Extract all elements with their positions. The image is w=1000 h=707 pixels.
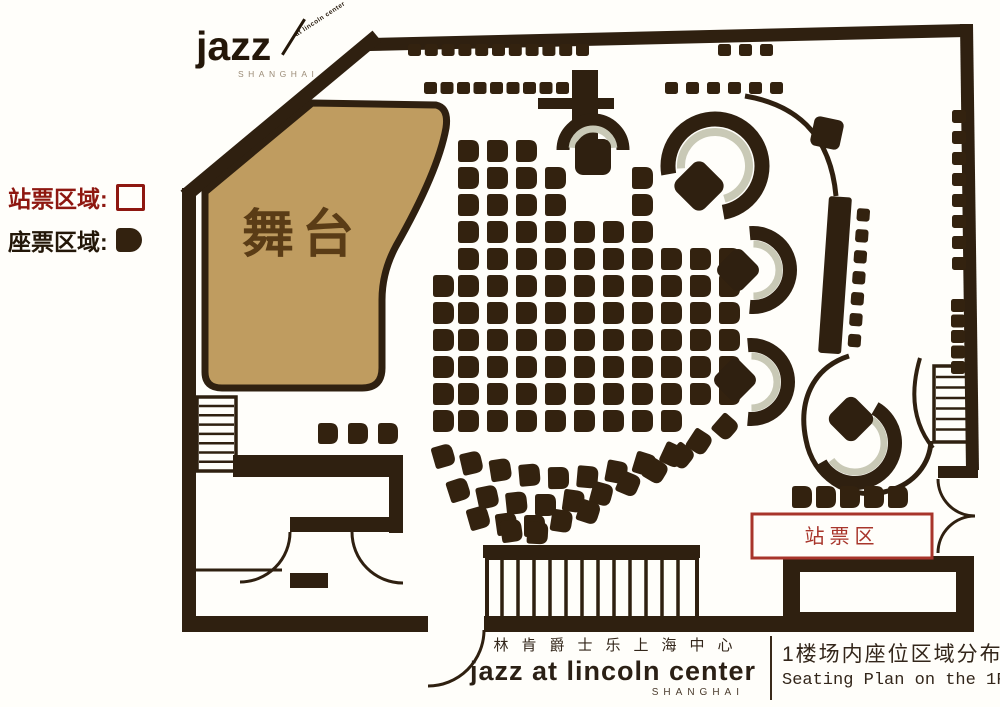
logo-word: jazz at lincoln center [196,26,318,67]
footer-plan-block: 1楼场内座位区域分布 Seating Plan on the 1F [782,634,1000,690]
legend-seated-label: 座票区域: [8,223,108,257]
jazz-logo: jazz at lincoln center SHANGHAI [196,26,318,79]
footer-venue-en: jazz at lincoln center [468,656,758,687]
stage-label: 舞台 [242,206,362,264]
legend-seated-row: 座票区域: [8,223,145,257]
logo-word-text: jazz [196,23,271,69]
entry-railing [487,558,697,622]
logo-city: SHANGHAI [238,69,318,79]
footer-venue-cn: 林肯爵士乐上海中心 [468,634,758,655]
bar-counter [809,115,871,355]
legend: 站票区域: 座票区域: [8,180,145,257]
standing-area-label: 站票区 [805,525,880,548]
footer-venue-city: SHANGHAI [468,687,758,698]
footer-plan-title-en: Seating Plan on the 1F [782,671,1000,690]
standing-area-box: 站票区 [752,514,932,558]
footer-venue-block: 林肯爵士乐上海中心 jazz at lincoln center SHANGHA… [468,634,758,698]
standing-swatch-icon [116,184,145,211]
legend-standing-row: 站票区域: [8,180,145,214]
footer-plan-title-cn: 1楼场内座位区域分布 [782,638,1000,668]
floorplan-canvas: 舞台 [0,0,1000,707]
footer: 林肯爵士乐上海中心 jazz at lincoln center SHANGHA… [468,634,1000,700]
stairs-left [197,397,236,471]
back-counter-inner [800,572,956,612]
legend-standing-label: 站票区域: [8,180,108,214]
seat-swatch-icon [116,228,142,252]
footer-divider [770,636,772,700]
floorplan-svg: 舞台 [0,0,1000,707]
